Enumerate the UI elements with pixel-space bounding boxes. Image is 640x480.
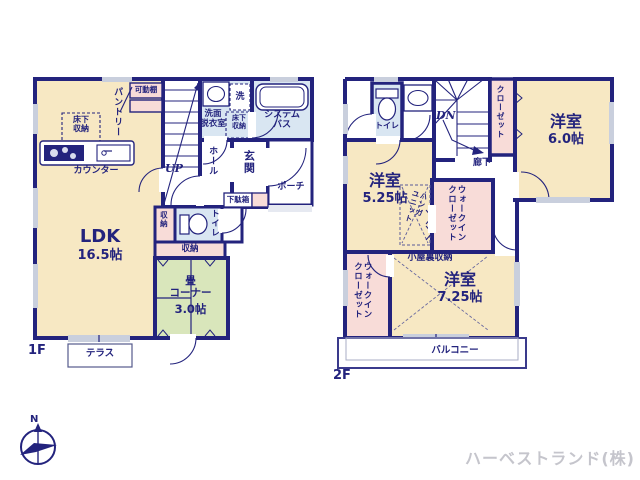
stairs-dn-label: DN xyxy=(436,110,456,122)
tatami-size: 3.0帖 xyxy=(153,303,228,316)
laundry-label: 洗 xyxy=(230,92,250,102)
room-725-size: 7.25帖 xyxy=(422,291,498,306)
room-6-size: 6.0帖 xyxy=(530,133,602,148)
room-ldk xyxy=(35,79,163,338)
washroom-label: 洗面 脱衣室 xyxy=(196,110,230,129)
underfloor-wash-label: 床下 収納 xyxy=(226,115,252,131)
wic-mid-label: ウォークイン クローゼット xyxy=(446,185,465,247)
shoebox-label: 下駄箱 xyxy=(224,196,252,204)
stairs-up-label: UP xyxy=(165,163,183,175)
toilet-1f-label: トイレ xyxy=(209,209,219,241)
closet-2f-label: クローゼット xyxy=(495,85,504,151)
porch-area xyxy=(268,140,312,205)
ldk-size: 16.5帖 xyxy=(55,249,145,264)
storage-side-label: 収納 xyxy=(159,211,167,239)
terrace-label: テラス xyxy=(68,349,132,360)
pantry-label: パントリー xyxy=(112,87,122,139)
floorplan-page: パントリー 可動棚 床下 収納 カウンター LDK 16.5帖 UP 洗面 脱衣… xyxy=(0,0,640,480)
bath-label: システム バス xyxy=(256,110,308,130)
counter-label: カウンター xyxy=(52,166,140,176)
toilet-icon-1f xyxy=(180,215,189,234)
underfloor-kitchen-label: 床下 収納 xyxy=(63,116,99,134)
washstand-1f xyxy=(203,82,229,106)
floor-1f-label: 1F xyxy=(28,344,46,359)
porch-label: ポーチ xyxy=(271,182,311,192)
movable-shelf-label: 可動棚 xyxy=(130,86,162,94)
floor-2f-label: 2F xyxy=(333,369,351,384)
tatami-name: 畳 コーナー xyxy=(153,276,228,300)
entrance-label: 玄関 xyxy=(242,150,254,188)
ldk-name: LDK xyxy=(55,227,145,247)
toilet-icon-2f xyxy=(376,89,398,98)
attic-label: 小屋裏収納 xyxy=(400,253,460,263)
north-label: N xyxy=(30,414,38,425)
wic-left-label: ウォークイン クローゼット xyxy=(352,262,371,334)
porch-step xyxy=(268,205,312,212)
balcony-label: バルコニー xyxy=(395,346,515,357)
toilet-2f-label: トイレ xyxy=(372,122,402,131)
storage-strip-label: 収納 xyxy=(155,245,225,255)
company-watermark: ハーベストランド(株) xyxy=(430,445,635,469)
hall-label: ホール xyxy=(207,146,217,192)
room-525-name: 洋室 xyxy=(347,172,423,190)
hallway-label: 廊下 xyxy=(462,158,502,168)
room-725-name: 洋室 xyxy=(422,271,498,289)
compass-icon xyxy=(20,423,57,464)
room-6-name: 洋室 xyxy=(530,113,602,131)
shelf-lower xyxy=(130,100,162,112)
